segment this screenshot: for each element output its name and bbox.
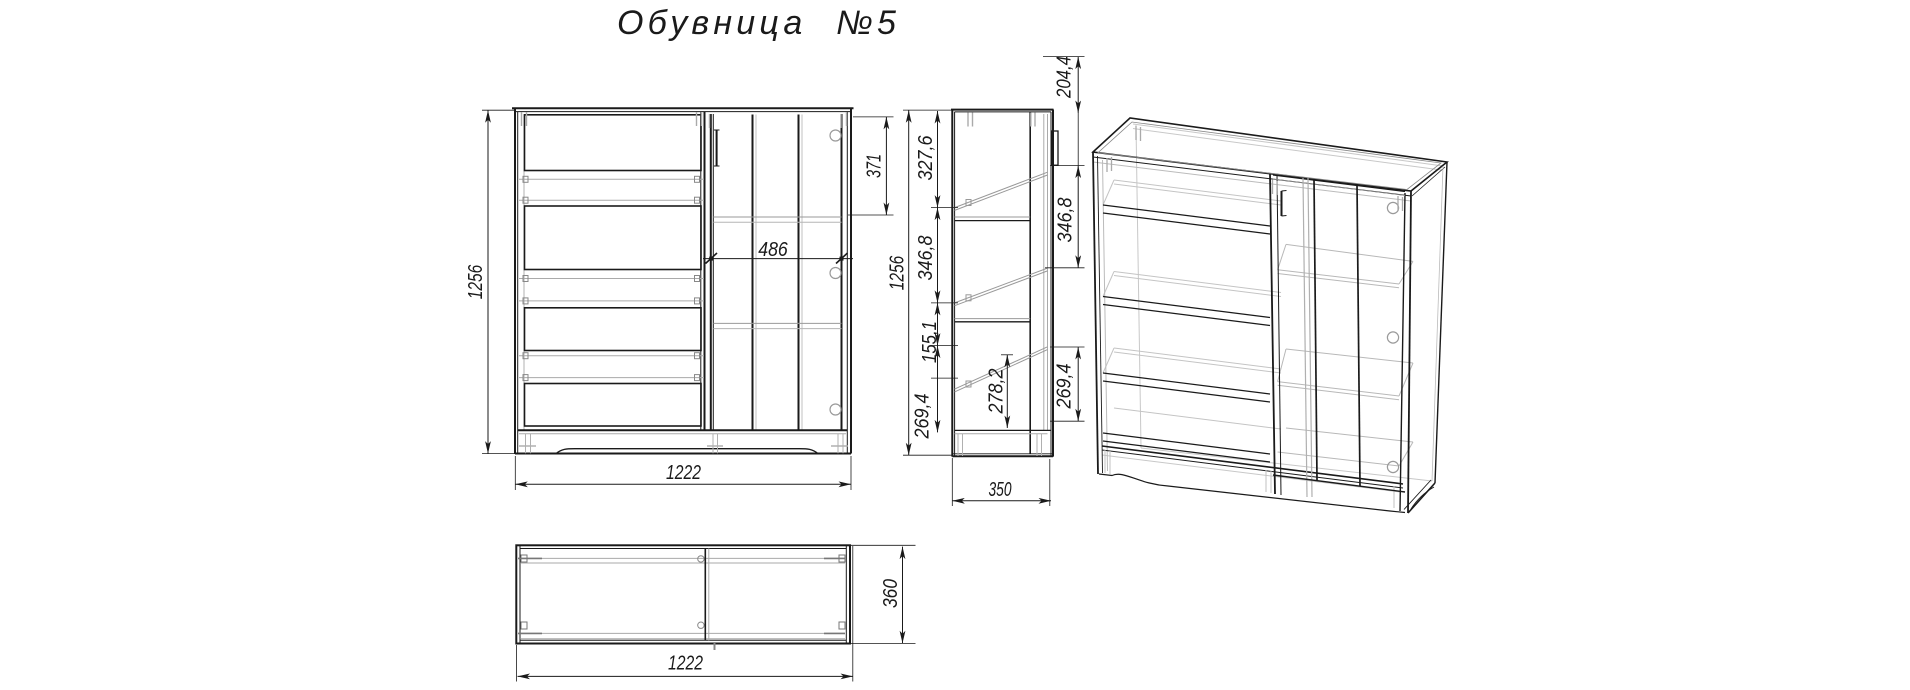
svg-text:350: 350: [989, 479, 1012, 501]
svg-text:Обувница: Обувница: [617, 4, 807, 42]
svg-text:1222: 1222: [666, 462, 701, 484]
svg-text:155,1: 155,1: [919, 321, 941, 363]
svg-text:360: 360: [880, 579, 902, 608]
svg-text:278,2: 278,2: [986, 369, 1008, 415]
svg-text:1256: 1256: [887, 255, 909, 290]
svg-text:346,8: 346,8: [915, 236, 937, 281]
svg-text:327,6: 327,6: [915, 135, 937, 181]
svg-text:269,4: 269,4: [912, 394, 934, 440]
svg-text:№5: №5: [836, 4, 900, 42]
svg-text:371: 371: [864, 154, 886, 178]
svg-text:346,8: 346,8: [1055, 198, 1077, 243]
svg-text:1222: 1222: [668, 653, 703, 675]
svg-text:486: 486: [758, 239, 788, 261]
svg-text:1256: 1256: [465, 264, 487, 299]
svg-text:269,4: 269,4: [1054, 364, 1076, 410]
svg-text:204,4: 204,4: [1054, 56, 1076, 99]
